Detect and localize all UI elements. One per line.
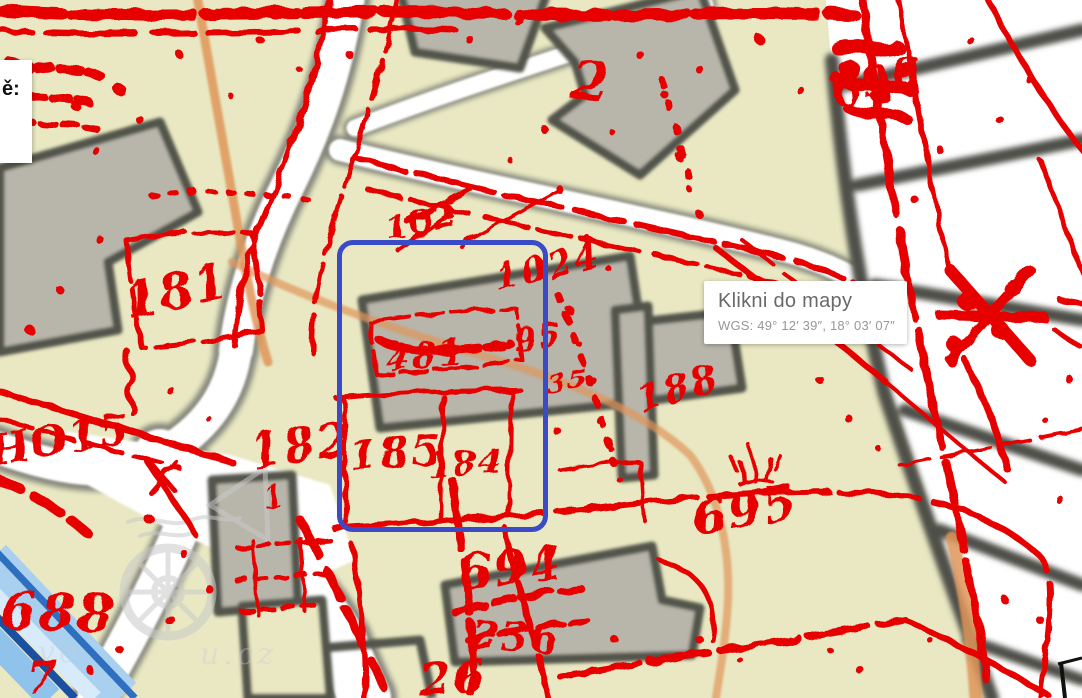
map-click-tooltip: Klikni do mapy WGS: 49° 12′ 39″, 18° 03′… [704, 281, 907, 344]
parcel-label: 35 [543, 361, 591, 401]
parcel-label: 694 [455, 535, 566, 602]
parcel-label: 688 [0, 580, 116, 645]
parcel-label: 1 [260, 478, 288, 516]
selection-rectangle [337, 240, 548, 532]
map-viewport[interactable]: vo u.cz [0, 0, 1082, 698]
parcel-label: 188 [630, 354, 724, 421]
parcel-label: 2 [568, 47, 615, 115]
parcel-label: 7 [26, 651, 60, 698]
parcel-label: HO15 [0, 403, 134, 476]
parcel-label: 181 [119, 253, 235, 330]
left-panel-fragment[interactable]: ě: [0, 60, 32, 163]
parcel-label: 26 [416, 648, 489, 698]
parcel-label: 695 [688, 474, 802, 548]
panel-label-fragment: ě: [2, 78, 20, 101]
tooltip-wgs-coordinates: WGS: 49° 12′ 39″, 18° 03′ 07″ [718, 318, 895, 333]
tooltip-title: Klikni do mapy [718, 290, 895, 313]
